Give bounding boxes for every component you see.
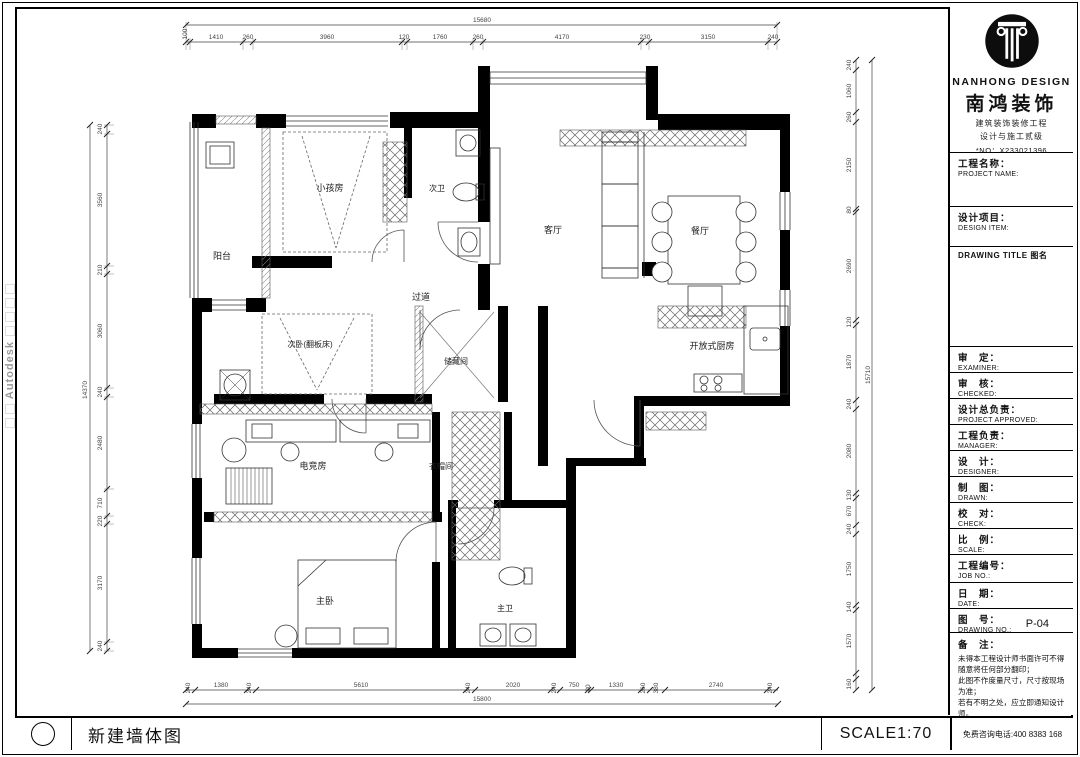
field-label-cn: 工程名称： <box>958 156 1073 170</box>
field-label-cn: 比 例： <box>958 532 1073 546</box>
dim-label: 1750 <box>846 561 853 576</box>
dim-label: 2480 <box>97 435 104 450</box>
dim-label: 240 <box>97 123 104 134</box>
notes-line: 若有不明之处，应立即通知设计 <box>958 697 1069 708</box>
dim-label: 240 <box>551 682 558 693</box>
dim-label: 1060 <box>846 83 853 98</box>
dim-label: 220 <box>97 515 104 526</box>
field-scale: 比 例： SCALE: <box>950 529 1073 555</box>
field-label-cn: 审 定： <box>958 350 1073 364</box>
dim-label: 240 <box>185 682 192 693</box>
field-label-en: DESIGNER: <box>958 469 1073 476</box>
watermark-box <box>5 326 15 336</box>
dim-label: 15800 <box>473 696 491 703</box>
dim-label: 1570 <box>846 633 853 648</box>
revision-circle-icon <box>31 722 55 746</box>
field-label-en: DRAWN: <box>958 495 1073 502</box>
watermark-box <box>5 312 15 322</box>
field-label-cn: 制 图： <box>958 480 1073 494</box>
field-label-en: MANAGER: <box>958 443 1073 450</box>
room-label-game: 电竞房 <box>299 460 326 471</box>
field-manager: 工程负责： MANAGER: <box>950 425 1073 451</box>
notes-line: 此图不作度量尺寸，尺寸按现场 <box>958 675 1069 686</box>
field-label-en: DRAWING TITLE 图名 <box>958 250 1073 261</box>
watermark-box <box>5 404 15 414</box>
dim-label: 1760 <box>433 34 448 41</box>
brand-name-cn: 南鸿装饰 <box>950 89 1073 116</box>
dim-label: 1380 <box>214 682 229 689</box>
dim-label: 240 <box>767 682 774 693</box>
dim-label: 3960 <box>320 34 335 41</box>
notes-title: 备 注： <box>958 637 1069 651</box>
dim-label: 80 <box>585 684 592 692</box>
field-label-cn: 审 核： <box>958 376 1073 390</box>
hotline-phone: 免费咨询电话:400 8383 168 <box>950 718 1073 750</box>
dim-label: 240 <box>97 640 104 651</box>
hatched-walls-layer <box>200 116 746 560</box>
field-label-en: EXAMINER: <box>958 365 1073 372</box>
field-label-cn: 设计总负责： <box>958 402 1073 416</box>
field-drawing-no: 图 号： DRAWING NO.: P-04 <box>950 609 1073 633</box>
dim-label: 5610 <box>354 682 369 689</box>
dim-label: 2080 <box>846 443 853 458</box>
field-drawn: 制 图： DRAWN: <box>950 477 1073 503</box>
dim-label: 240 <box>465 682 472 693</box>
field-label-en: JOB NO.: <box>958 573 1073 580</box>
room-label-master: 主卧 <box>316 595 334 606</box>
room-label-cloak: 衣帽间 <box>429 461 453 471</box>
field-project-approved: 设计总负责： PROJECT APPROVED: <box>950 399 1073 425</box>
field-label-cn: 图 号： <box>958 612 1012 626</box>
dim-label: 1410 <box>209 34 224 41</box>
room-label-bath2: 次卫 <box>429 183 445 193</box>
field-design-item: 设计项目： DESIGN ITEM: <box>950 207 1073 247</box>
field-label-en: CHECK: <box>958 521 1073 528</box>
field-label-en: SCALE: <box>958 547 1073 554</box>
room-label-hall: 过道 <box>412 291 430 302</box>
dim-label: 80 <box>846 206 853 214</box>
company-logo-icon <box>984 13 1040 69</box>
field-label-en: DATE: <box>958 601 1073 608</box>
dim-label: 3560 <box>97 192 104 207</box>
watermark-box <box>5 298 15 308</box>
room-label-balcony: 阳台 <box>213 250 231 261</box>
revision-bubble-cell <box>15 718 72 750</box>
autodesk-watermark: Autodesk <box>4 282 16 430</box>
dim-label: 710 <box>97 497 104 508</box>
field-examiner: 审 定： EXAMINER: <box>950 347 1073 373</box>
field-label-cn: 设计项目： <box>958 210 1073 224</box>
walls-layer <box>192 66 790 658</box>
floor-plan-svg: 15680 100 1410 260 3960 120 1760 260 417… <box>0 0 1080 757</box>
dim-label: 2150 <box>846 157 853 172</box>
dim-label: 120 <box>846 316 853 327</box>
dim-label: 230 <box>640 34 651 41</box>
field-label-en: PROJECT NAME: <box>958 171 1073 178</box>
dim-label: 210 <box>97 264 104 275</box>
dim-label: 3060 <box>97 323 104 338</box>
field-label-en: CHECKED: <box>958 391 1073 398</box>
notes-line: 随意将任何部分翻印； <box>958 664 1069 675</box>
bottom-title-bar: 新建墙体图 SCALE1:70 免费咨询电话:400 8383 168 <box>15 716 1073 750</box>
furniture-layer <box>206 130 788 648</box>
drawing-sheet: Autodesk <box>0 0 1080 757</box>
dim-label: 260 <box>846 111 853 122</box>
dim-label: 120 <box>399 34 410 41</box>
dim-label: 1330 <box>609 682 624 689</box>
room-label-bath1: 主卫 <box>497 603 513 613</box>
dim-label: 2020 <box>506 682 521 689</box>
field-job-no: 工程编号： JOB NO.: <box>950 555 1073 583</box>
watermark-box <box>5 284 15 294</box>
brand-cert-line2: 设计与施工贰级 <box>950 131 1073 142</box>
watermark-text: Autodesk <box>4 341 16 399</box>
drawing-no-labels: 图 号： DRAWING NO.: <box>958 612 1012 634</box>
dim-label: 14370 <box>82 381 89 399</box>
dim-label: 240 <box>97 386 104 397</box>
dim-label: 15710 <box>865 366 872 384</box>
dim-label: 240 <box>846 523 853 534</box>
brand-name-en: NANHONG DESIGN <box>950 76 1073 88</box>
dim-label: 2740 <box>709 682 724 689</box>
dim-label: 380 <box>653 682 660 693</box>
field-label-cn: 校 对： <box>958 506 1073 520</box>
dim-label: 260 <box>473 34 484 41</box>
brand-cert-line1: 建筑装饰装修工程 <box>950 118 1073 129</box>
field-label-cn: 日 期： <box>958 586 1073 600</box>
room-label-storage: 储藏间 <box>444 356 468 366</box>
dim-label: 100 <box>182 28 189 39</box>
drawing-name: 新建墙体图 <box>72 718 821 750</box>
dim-label: 260 <box>640 682 647 693</box>
field-label-cn: 工程编号： <box>958 558 1073 572</box>
dim-label: 15680 <box>473 17 491 24</box>
watermark-box <box>5 418 15 428</box>
dim-label: 240 <box>246 682 253 693</box>
dim-label: 1870 <box>846 354 853 369</box>
dim-label: 3170 <box>97 575 104 590</box>
dim-label: 240 <box>846 398 853 409</box>
notes-line: 为准； <box>958 686 1069 697</box>
room-label-bed2: 次卧(翻板床) <box>287 339 333 349</box>
field-project-name: 工程名称： PROJECT NAME: <box>950 153 1073 207</box>
dim-label: 130 <box>846 489 853 500</box>
dim-label: 140 <box>846 601 853 612</box>
room-label-kids: 小孩房 <box>316 182 343 193</box>
dim-label: 3150 <box>701 34 716 41</box>
field-drawing-title: DRAWING TITLE 图名 <box>950 247 1073 347</box>
field-checked: 审 核： CHECKED: <box>950 373 1073 399</box>
dim-label: 2690 <box>846 258 853 273</box>
field-label-cn: 工程负责： <box>958 428 1073 442</box>
notes-line: 未得本工程设计师书面许可不得 <box>958 653 1069 664</box>
field-date: 日 期： DATE: <box>950 583 1073 609</box>
field-designer: 设 计： DESIGNER: <box>950 451 1073 477</box>
drawing-number-value: P-04 <box>1026 618 1063 630</box>
dim-label: 240 <box>846 59 853 70</box>
room-label-kitchen: 开放式厨房 <box>689 340 734 351</box>
room-label-dining: 餐厅 <box>691 225 709 236</box>
field-label-en: DESIGN ITEM: <box>958 225 1073 232</box>
field-label-cn: 设 计： <box>958 454 1073 468</box>
dim-label: 750 <box>569 682 580 689</box>
company-logo-block: NANHONG DESIGN 南鸿装饰 建筑装饰装修工程 设计与施工贰级 *NO… <box>950 7 1073 153</box>
field-label-en: PROJECT APPROVED: <box>958 417 1073 424</box>
drawing-scale: SCALE1:70 <box>821 718 950 750</box>
title-block: NANHONG DESIGN 南鸿装饰 建筑装饰装修工程 设计与施工贰级 *NO… <box>948 7 1073 715</box>
field-check: 校 对： CHECK: <box>950 503 1073 529</box>
dim-label: 240 <box>768 34 779 41</box>
room-label-living: 客厅 <box>544 224 562 235</box>
dim-label: 260 <box>243 34 254 41</box>
dim-label: 670 <box>846 505 853 516</box>
dim-label: 160 <box>846 678 853 689</box>
dim-label: 4170 <box>555 34 570 41</box>
